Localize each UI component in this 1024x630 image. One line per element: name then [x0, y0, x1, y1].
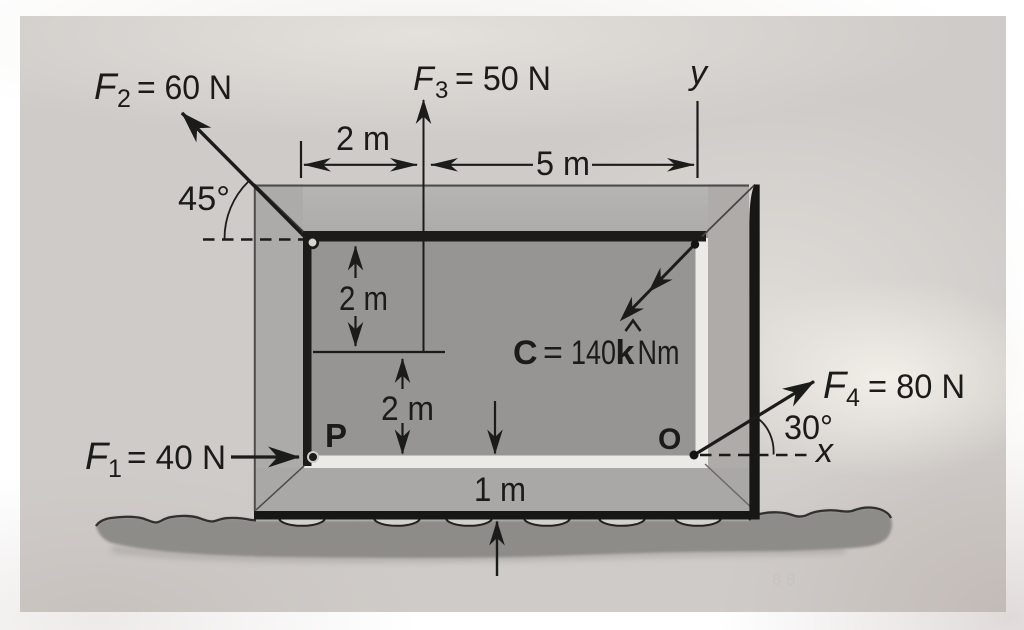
svg-text:F: F [94, 66, 119, 107]
svg-text:F: F [823, 365, 848, 407]
svg-text:45°: 45° [178, 180, 230, 218]
svg-text:F: F [85, 436, 110, 478]
svg-text:= 50 N: = 50 N [455, 60, 551, 98]
svg-text:1: 1 [108, 455, 122, 483]
svg-text:y: y [688, 54, 709, 92]
svg-text:k: k [616, 334, 635, 372]
svg-text:O: O [658, 423, 681, 456]
svg-text:4: 4 [846, 384, 860, 412]
svg-text:x: x [814, 432, 834, 470]
svg-text:=: = [543, 334, 563, 372]
svg-text:2 m: 2 m [381, 390, 434, 428]
svg-text:= 40 N: = 40 N [127, 439, 226, 477]
svg-text:8 8: 8 8 [772, 570, 796, 589]
svg-text:2 m: 2 m [339, 280, 388, 318]
svg-text:5 m: 5 m [536, 145, 590, 183]
svg-text:Nm: Nm [638, 334, 680, 372]
svg-text:= 80 N: = 80 N [868, 368, 965, 406]
svg-text:2: 2 [117, 85, 131, 113]
svg-text:3: 3 [435, 77, 448, 104]
svg-text:C: C [513, 334, 538, 372]
svg-text:2 m: 2 m [336, 120, 390, 158]
svg-text:= 60 N: = 60 N [137, 69, 232, 107]
svg-text:F: F [413, 60, 436, 98]
svg-text:140: 140 [571, 334, 616, 372]
svg-text:1 m: 1 m [474, 471, 526, 509]
svg-text:P: P [325, 417, 347, 454]
